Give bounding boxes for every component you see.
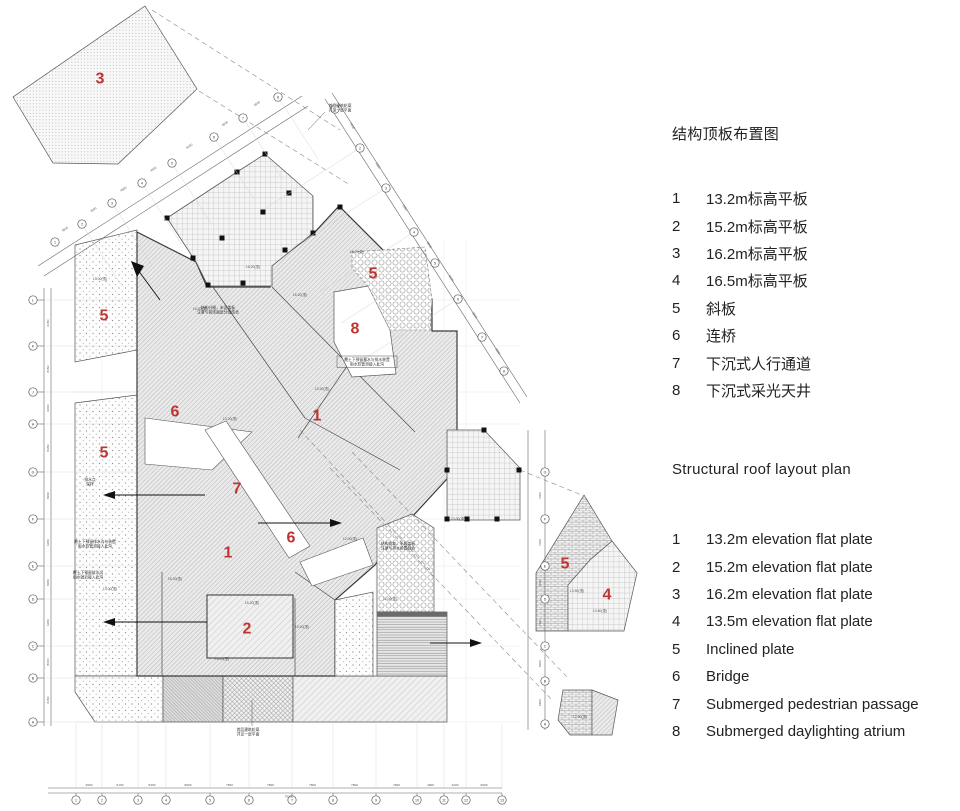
dimension-label: 6150 <box>46 696 50 703</box>
dimension-label: 5300 <box>149 783 156 787</box>
region-label-1: 1 <box>313 408 322 425</box>
axis-diag-left-label: 5 <box>171 161 173 165</box>
legend-item-label: 16.2m标高平板 <box>706 243 808 264</box>
band-dotted-corner <box>75 676 163 722</box>
dimension-label: 5000 <box>426 241 433 249</box>
dimension-label: 6150 <box>46 319 50 326</box>
axis-left-label: L <box>32 298 34 302</box>
region-label-5: 5 <box>100 308 109 325</box>
legend-item: 8下沉式采光天井 <box>672 377 811 404</box>
legend-item-number: 3 <box>672 586 706 603</box>
legend-item-number: 7 <box>672 696 706 713</box>
axis-diag-right-label: 4 <box>413 230 415 234</box>
dimension-label: 6500 <box>471 311 478 319</box>
column-square <box>220 236 225 241</box>
legend-item: 215.2m标高平板 <box>672 212 811 239</box>
axis-bottom-label: 1 <box>75 798 77 802</box>
legend-item-number: 1 <box>672 190 706 207</box>
dimension-label: 6600 <box>481 783 488 787</box>
elevation-label: 11.00(顶) <box>383 597 397 601</box>
column-square <box>495 517 500 522</box>
dimension-label: 6150 <box>46 539 50 546</box>
dimension-label: 75200 <box>285 795 294 799</box>
dimension-label: 6000 <box>448 274 455 282</box>
legend-item-label: 连桥 <box>706 325 736 346</box>
axis-diag-left-label: 4 <box>141 181 143 185</box>
dimension-label: 6150 <box>46 619 50 626</box>
band-dense-hatch <box>163 676 223 722</box>
dimension-label: 4500 <box>253 100 261 107</box>
annotation-text: 雨水就近接入此沟 <box>73 575 104 580</box>
legend-item-label: 15.2m标高平板 <box>706 216 808 237</box>
legend-item-number: 6 <box>672 668 706 685</box>
column-square <box>191 256 196 261</box>
legend-items-zh: 113.2m标高平板215.2m标高平板316.2m标高平板416.5m标高平板… <box>672 185 811 404</box>
region-label-7: 7 <box>233 481 242 498</box>
annotation-text: 覆土下预留排水沟与装置 <box>74 539 116 544</box>
region-label-5: 5 <box>561 556 570 573</box>
legend-item-label: 斜板 <box>706 298 736 319</box>
elevation-label: 13.00(顶) <box>451 517 465 521</box>
axis-left-label: C <box>32 644 35 648</box>
legend-item: 413.5m elevation flat plate <box>672 608 919 635</box>
region-label-5: 5 <box>100 445 109 462</box>
small-shape-brick <box>558 690 592 735</box>
legend-item-number: 4 <box>672 272 706 289</box>
elevation-label: 15.20(顶) <box>168 577 182 581</box>
region-label-2: 2 <box>243 621 252 638</box>
legend-item-number: 6 <box>672 327 706 344</box>
axis-diag-left-label: 1 <box>54 240 56 244</box>
region-label-8: 8 <box>351 321 360 338</box>
dimension-label: 4500 <box>119 185 127 192</box>
legend-item-label: Inclined plate <box>706 641 794 658</box>
legend-en: Structural roof layout plan 113.2m eleva… <box>672 461 919 745</box>
legend-item-number: 2 <box>672 559 706 576</box>
axis-right-label: C <box>544 644 547 648</box>
band-crosshatch <box>223 676 293 722</box>
region-3-plate <box>13 6 197 164</box>
annotation-text: 详见一层平面 <box>329 108 352 113</box>
region-label-4: 4 <box>603 587 612 604</box>
annotation-text: 雨水软管须接入此沟 <box>350 362 384 367</box>
elevation-label: 12.00(顶) <box>573 715 587 719</box>
region-label-5: 5 <box>369 266 378 283</box>
dimension-label: 8150 <box>46 492 50 499</box>
elevation-label: 13.00(顶) <box>103 587 117 591</box>
elevation-label: 16.20(顶) <box>246 265 260 269</box>
legend-item: 215.2m elevation flat plate <box>672 553 919 580</box>
legend-item: 8Submerged daylighting atrium <box>672 718 919 745</box>
axis-bottom-label: 12 <box>464 798 468 802</box>
annotation-leader <box>308 112 325 130</box>
diagonal-extension-line <box>278 97 318 159</box>
elevation-label: 13.50(顶) <box>570 589 584 593</box>
dimension-label: 7800 <box>393 783 400 787</box>
annotation-text: 注意与装饰面层分缝结合 <box>197 310 239 315</box>
column-square <box>261 210 266 215</box>
legend-item-number: 5 <box>672 641 706 658</box>
annotation-text: 首层建筑轮廓 <box>329 103 352 108</box>
dimension-label: 4500 <box>61 225 69 232</box>
legend-zh: 结构顶板布置图 113.2m标高平板215.2m标高平板316.2m标高平板41… <box>672 123 811 404</box>
axis-right-label: D <box>544 597 547 601</box>
axis-bottom-label: 11 <box>442 798 446 802</box>
dimension-label: 4500 <box>221 120 229 127</box>
region-5-inclined-lower-left <box>75 395 137 676</box>
annotation-text: 雨水软管须接入此沟 <box>78 544 112 549</box>
legend-item: 316.2m标高平板 <box>672 240 811 267</box>
dimension-label: 7800 <box>267 783 274 787</box>
elevation-label: 15.20(顶) <box>293 293 307 297</box>
dimension-label: 7000 <box>538 539 542 546</box>
annotation-text: 采样 <box>86 482 94 487</box>
legend-item-label: 下沉式人行通道 <box>706 353 811 374</box>
dimension-label: 7500 <box>226 783 233 787</box>
axis-diag-right-label: 7 <box>481 335 483 339</box>
elevation-label: 13.20(顶) <box>215 657 229 661</box>
legend-item: 6连桥 <box>672 322 811 349</box>
annotation-text: 覆土下预留排水沟 <box>73 570 104 575</box>
legend-item: 113.2m elevation flat plate <box>672 526 919 553</box>
elevation-label: 16.20(坡) <box>350 249 364 254</box>
dimension-label: 4500 <box>89 206 97 213</box>
legend-title-zh: 结构顶板布置图 <box>672 123 811 144</box>
axis-bottom-label: 6 <box>248 798 250 802</box>
axis-bottom-label: 13 <box>500 798 504 802</box>
legend-item-label: 16.2m elevation flat plate <box>706 586 873 603</box>
small-shape-hatch <box>592 690 618 735</box>
legend-item: 5斜板 <box>672 295 811 322</box>
legend-item-label: 13.2m elevation flat plate <box>706 531 873 548</box>
column-square <box>283 248 288 253</box>
legend-item-label: 16.5m标高平板 <box>706 270 808 291</box>
axis-bottom-label: 4 <box>165 798 167 802</box>
legend-item-number: 3 <box>672 245 706 262</box>
legend-item-label: Submerged daylighting atrium <box>706 723 905 740</box>
dimension-label: 5000 <box>538 579 542 586</box>
dimension-label: 5200 <box>538 660 542 667</box>
axis-bottom-label: 3 <box>137 798 139 802</box>
axis-diag-left-label: 8 <box>277 95 279 99</box>
legend-item: 7Submerged pedestrian passage <box>672 690 919 717</box>
legend-item: 113.2m标高平板 <box>672 185 811 212</box>
legend-item-label: Submerged pedestrian passage <box>706 696 919 713</box>
legend-item-label: 13.2m标高平板 <box>706 188 808 209</box>
annotation-text: 注意与排水装置结合 <box>381 546 415 551</box>
annotation-text: 覆土下预留蓄水与排水装置 <box>344 357 390 362</box>
axis-diag-right-label: 6 <box>457 297 459 301</box>
axis-bottom-label: 8 <box>332 798 334 802</box>
legend-item-number: 1 <box>672 531 706 548</box>
hatch-block-edge <box>377 612 447 617</box>
axis-diag-right-label: 3 <box>385 186 387 190</box>
legend-item-label: 下沉式采光天井 <box>706 380 811 401</box>
band-light-hatch <box>293 676 447 722</box>
annotation-text: 详见一层平面 <box>237 732 260 737</box>
column-square <box>517 468 522 473</box>
axis-left-label: H <box>32 422 35 426</box>
axis-bottom-label: 9 <box>375 798 377 802</box>
legend-item: 5Inclined plate <box>672 636 919 663</box>
elevation-label: 13.20(顶) <box>223 417 237 421</box>
legend-item: 416.5m标高平板 <box>672 267 811 294</box>
legend-item-number: 4 <box>672 613 706 630</box>
elevation-label: 15.20(顶) <box>245 601 259 605</box>
annotation-text: 首层建筑轮廓 <box>237 727 260 732</box>
elevation-label: 13.20(顶) <box>315 387 329 391</box>
column-square <box>206 283 211 288</box>
dimension-label: 8150 <box>46 579 50 586</box>
legend-item-number: 8 <box>672 723 706 740</box>
dimension-label: 7800 <box>351 783 358 787</box>
elevation-label: 13.50(顶) <box>593 609 607 613</box>
dimension-label: 8150 <box>46 444 50 451</box>
axis-diag-right-label: 2 <box>359 146 361 150</box>
axis-bottom-label: 7 <box>291 798 293 802</box>
horizontal-hatch-block <box>377 612 447 676</box>
column-square <box>338 205 343 210</box>
axis-bottom-label: 5 <box>209 798 211 802</box>
dimension-label: 7000 <box>538 619 542 626</box>
legend-item: 6Bridge <box>672 663 919 690</box>
axis-bottom-label: 2 <box>101 798 103 802</box>
dimension-label: 6500 <box>538 699 542 706</box>
dimension-label: 8000 <box>185 783 192 787</box>
legend-title-en: Structural roof layout plan <box>672 461 919 478</box>
column-square <box>445 468 450 473</box>
annotation-text: 结构找坡，不设盖板 <box>381 541 415 546</box>
column-square <box>241 281 246 286</box>
column-square <box>465 517 470 522</box>
axis-diag-left-label: 2 <box>81 222 83 226</box>
dimension-label: 8000 <box>46 658 50 665</box>
dimension-label: 6200 <box>46 404 50 411</box>
legend-item-number: 8 <box>672 382 706 399</box>
dimension-label: 6100 <box>117 783 124 787</box>
legend-item-label: 13.5m elevation flat plate <box>706 613 873 630</box>
region-label-6: 6 <box>287 530 296 547</box>
elevation-label: 13.00(顶) <box>93 277 107 281</box>
east-waffle-plaza <box>447 430 520 520</box>
column-square <box>165 216 170 221</box>
legend-item: 316.2m elevation flat plate <box>672 581 919 608</box>
dimension-label: 8150 <box>46 365 50 372</box>
annotation-text: 结构分缝，未设盖板 <box>201 305 235 310</box>
dimension-label: 6000 <box>185 142 193 149</box>
legend-items-en: 113.2m elevation flat plate215.2m elevat… <box>672 526 919 745</box>
elevation-label: 13.20(顶) <box>295 625 309 629</box>
column-square <box>445 517 450 522</box>
dimension-label: 4200 <box>452 783 459 787</box>
structural-roof-plan-sheet: LKJHGFEDCBAGFEDCBA1234567891011121312345… <box>0 0 960 811</box>
region-label-6: 6 <box>171 404 180 421</box>
dimension-label: 5800 <box>494 347 501 355</box>
column-square <box>482 428 487 433</box>
dotted-wedge <box>335 592 373 676</box>
legend-item-label: Bridge <box>706 668 749 685</box>
axis-left-label: D <box>32 597 35 601</box>
axis-diag-left-label: 3 <box>111 201 113 205</box>
legend-item-number: 2 <box>672 218 706 235</box>
legend-item-label: 15.2m elevation flat plate <box>706 559 873 576</box>
legend-item: 7下沉式人行通道 <box>672 349 811 376</box>
region-label-3: 3 <box>96 71 105 88</box>
dimension-label: 4900 <box>427 783 434 787</box>
elevation-label: 12.00(顶) <box>343 537 357 541</box>
region-label-1: 1 <box>224 545 233 562</box>
axis-left-label: G <box>32 470 35 474</box>
dimension-label: 4500 <box>86 783 93 787</box>
axis-diag-right-label: 8 <box>503 369 505 373</box>
axis-left-label: J <box>32 390 34 394</box>
axis-diag-right-label: 5 <box>434 261 436 265</box>
axis-diag-left-label: 6 <box>213 135 215 139</box>
legend-item-number: 5 <box>672 300 706 317</box>
dimension-label: 7000 <box>538 492 542 499</box>
axis-bottom-label: 10 <box>415 798 419 802</box>
dimension-label: 4500 <box>149 165 157 172</box>
column-square <box>287 191 292 196</box>
dimension-label: 7800 <box>309 783 316 787</box>
legend-item-number: 7 <box>672 355 706 372</box>
axis-diag-left-label: 7 <box>242 116 244 120</box>
annotation-text: 排水点 <box>84 477 96 482</box>
axis-right-label: G <box>544 470 547 474</box>
